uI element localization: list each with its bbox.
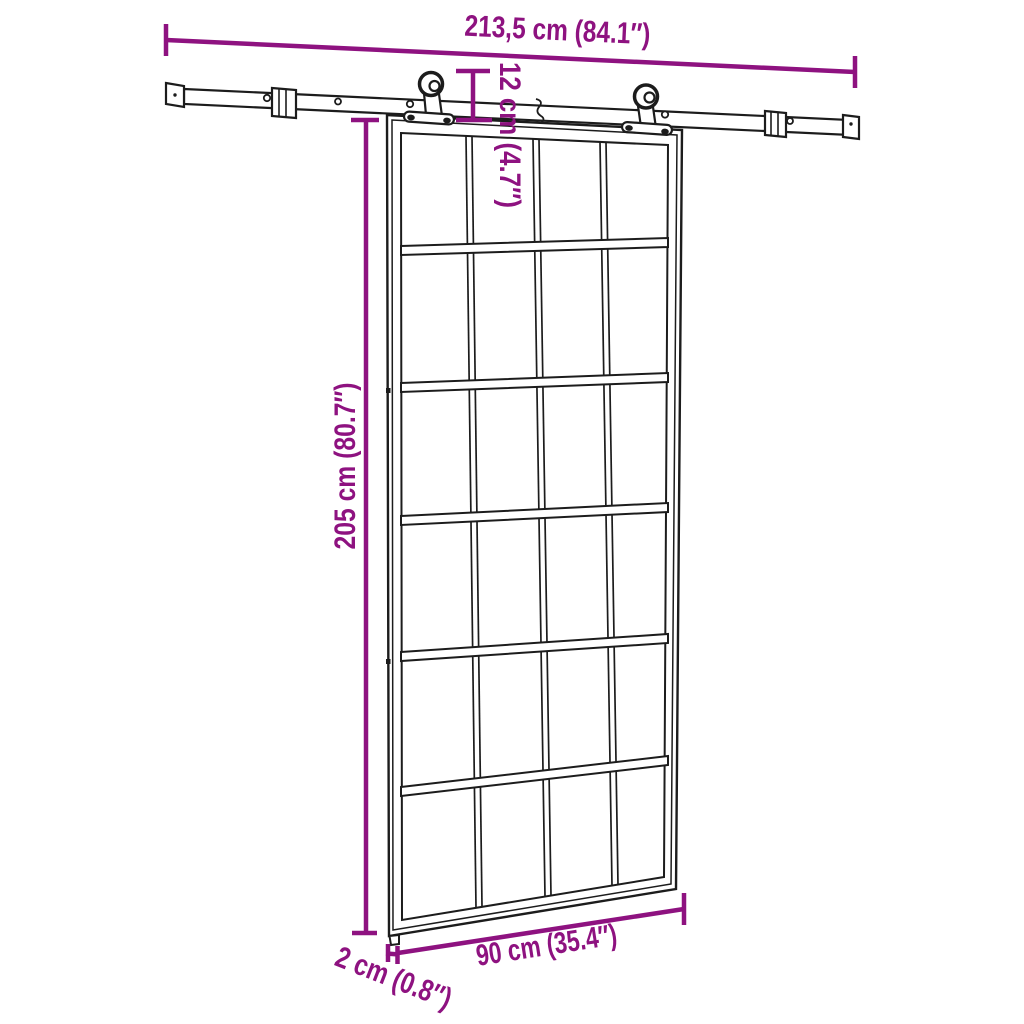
- rail-end-cap-right: [843, 115, 859, 139]
- rail-pin-dot: [849, 122, 852, 125]
- right-roller-hub: [645, 93, 655, 103]
- rail-coupling-left: [272, 88, 296, 118]
- hanger-drop-label: 12 cm (4.7″): [493, 62, 526, 208]
- glass-door: [386, 115, 682, 945]
- rail-screw-hole: [264, 95, 270, 101]
- door-width-label: 90 cm (35.4″): [474, 918, 619, 972]
- left-roller-hub: [430, 81, 440, 91]
- rail-screw-hole: [787, 118, 793, 124]
- frame-fixing-dot: [386, 659, 391, 664]
- door-height-label: 205 cm (80.7″): [329, 383, 362, 550]
- diagram-canvas: 213,5 cm (84.1″) 12 cm (4.7″) 205 cm (80…: [0, 0, 1024, 1024]
- sliding-door-dimension-diagram: 213,5 cm (84.1″) 12 cm (4.7″) 205 cm (80…: [0, 0, 1024, 1024]
- rail-coupling-right: [765, 111, 786, 137]
- rail-length-label: 213,5 cm (84.1″): [464, 10, 651, 52]
- rail-screw-hole: [407, 101, 413, 107]
- door-thickness-connector: [386, 954, 400, 955]
- door-floor-guide: [390, 935, 400, 945]
- rail-screw-hole: [335, 99, 341, 105]
- frame-fixing-dot: [386, 388, 391, 393]
- rail-screw-hole: [662, 111, 668, 117]
- rail-pin-dot: [173, 93, 176, 96]
